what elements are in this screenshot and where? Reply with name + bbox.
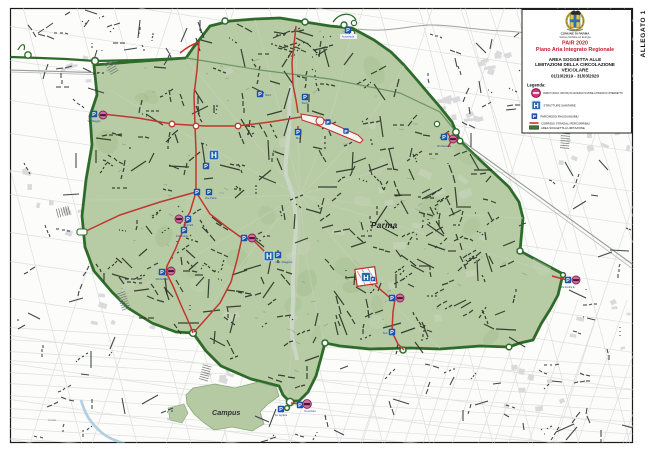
svg-text:P: P — [372, 277, 375, 282]
svg-text:P: P — [298, 403, 302, 409]
svg-text:Via Reggio: Via Reggio — [88, 119, 101, 123]
svg-text:AREA SOGGETTA ALLE: AREA SOGGETTA ALLE — [549, 57, 602, 62]
svg-text:VEICOLARE: VEICOLARE — [562, 68, 589, 73]
svg-text:P: P — [276, 253, 280, 259]
svg-text:P: P — [303, 95, 307, 101]
svg-text:P.le Fiume: P.le Fiume — [176, 234, 189, 238]
svg-text:P: P — [242, 236, 246, 242]
svg-text:H: H — [363, 273, 368, 282]
svg-text:Osp. Maggiore: Osp. Maggiore — [275, 260, 293, 264]
svg-text:CORRIDOI STRADALI PERCORRIBILI: CORRIDOI STRADALI PERCORRIBILI — [541, 121, 590, 125]
svg-text:H: H — [266, 252, 272, 261]
svg-text:Duc: Duc — [296, 136, 301, 140]
svg-text:Campus: Campus — [212, 408, 240, 417]
svg-text:Via Fratti: Via Fratti — [183, 223, 194, 227]
svg-text:P: P — [195, 190, 199, 196]
svg-text:Autostrada: Autostrada — [342, 35, 355, 39]
svg-text:P: P — [186, 217, 190, 223]
svg-text:Sud: Sud — [383, 331, 388, 335]
svg-text:P: P — [442, 135, 446, 141]
svg-text:P: P — [160, 270, 164, 276]
svg-text:P: P — [296, 130, 300, 136]
svg-text:P: P — [182, 228, 186, 234]
svg-text:P.le Pablo: P.le Pablo — [205, 196, 217, 200]
svg-text:STRUTTURE SANITARIE: STRUTTURE SANITARIE — [544, 104, 576, 108]
svg-text:Nord: Nord — [265, 93, 271, 97]
svg-text:P: P — [390, 330, 394, 336]
svg-text:Montebello: Montebello — [156, 277, 169, 281]
svg-text:AREA SOGGETTA A LIMITAZIONE: AREA SOGGETTA A LIMITAZIONE — [541, 126, 585, 130]
svg-text:P: P — [92, 112, 96, 118]
svg-text:PARCHEGGI RAGGIUNGIBILI: PARCHEGGI RAGGIUNGIBILI — [541, 115, 580, 119]
svg-text:Via Mantova: Via Mantova — [437, 144, 452, 148]
svg-text:PAIR 2020: PAIR 2020 — [562, 41, 588, 47]
svg-text:localita: localita — [48, 418, 57, 422]
svg-text:S.Lazzaro: S.Lazzaro — [304, 409, 316, 413]
svg-text:Settore Mobilita ed Energia: Settore Mobilita ed Energia — [559, 35, 591, 39]
svg-text:Via Emilia E.: Via Emilia E. — [561, 285, 576, 289]
svg-text:P: P — [204, 164, 208, 170]
svg-text:LIMITAZIONI DELLA CIRCOLAZIONE: LIMITAZIONI DELLA CIRCOLAZIONE — [535, 62, 615, 67]
svg-text:Toschi: Toschi — [301, 101, 309, 105]
svg-text:H: H — [211, 151, 217, 160]
svg-text:P: P — [258, 92, 262, 98]
svg-text:H: H — [534, 103, 539, 110]
svg-text:P: P — [279, 407, 283, 413]
svg-text:Legenda:: Legenda: — [527, 83, 546, 88]
svg-text:Piano Aria Integrato Regionale: Piano Aria Integrato Regionale — [536, 47, 614, 53]
svg-text:P: P — [207, 190, 211, 196]
svg-text:P: P — [566, 278, 570, 284]
svg-text:VARCHI (SOLO USCITA) DI ACCESS: VARCHI (SOLO USCITA) DI ACCESSO IN ZONE … — [543, 92, 623, 95]
svg-text:Ist. Agraria: Ist. Agraria — [275, 413, 288, 417]
svg-text:COMUNE DI PARMA: COMUNE DI PARMA — [561, 31, 591, 35]
svg-text:01/10/2019 - 31/03/2020: 01/10/2019 - 31/03/2020 — [551, 73, 599, 78]
svg-text:P: P — [390, 296, 394, 302]
svg-text:P: P — [346, 28, 350, 34]
svg-text:Parma: Parma — [371, 221, 398, 230]
svg-text:ALLEGATO 1: ALLEGATO 1 — [640, 10, 647, 58]
